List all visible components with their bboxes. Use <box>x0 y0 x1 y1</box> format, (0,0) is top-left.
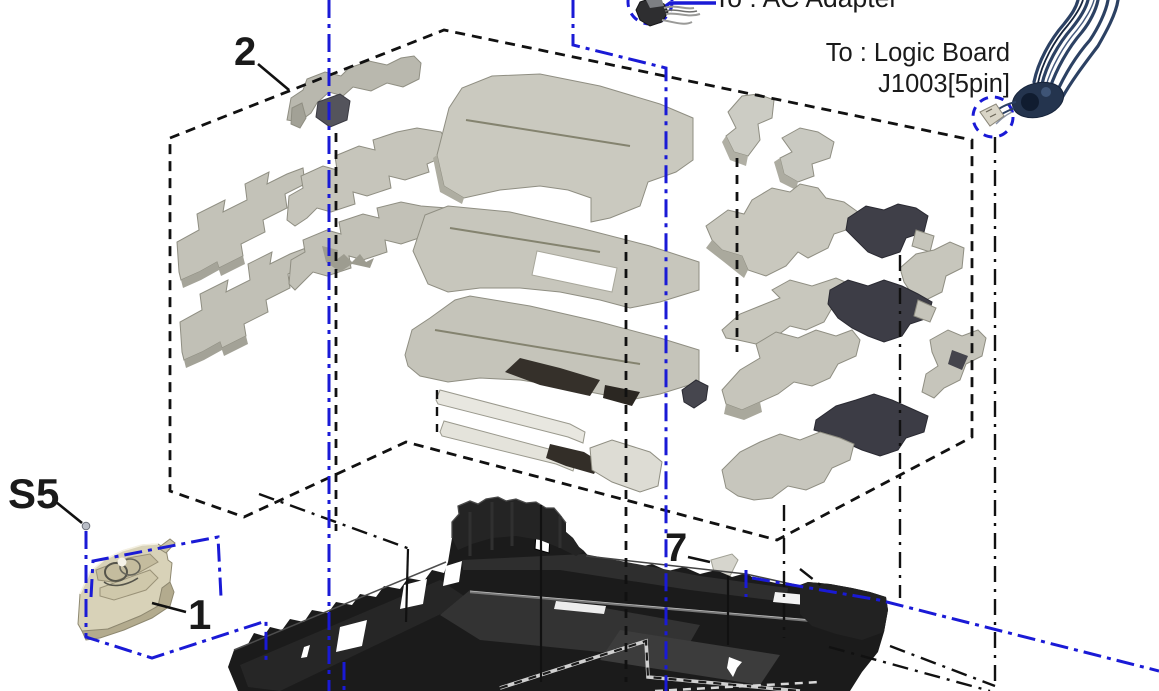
svg-text:To : AC Adapter: To : AC Adapter <box>714 0 898 13</box>
svg-text:S5: S5 <box>8 470 59 517</box>
svg-text:2: 2 <box>234 30 256 74</box>
svg-text:7: 7 <box>665 526 687 570</box>
svg-text:J1003[5pin]: J1003[5pin] <box>878 70 1010 98</box>
svg-text:1: 1 <box>188 591 211 638</box>
svg-text:To : Logic Board: To : Logic Board <box>826 39 1010 67</box>
